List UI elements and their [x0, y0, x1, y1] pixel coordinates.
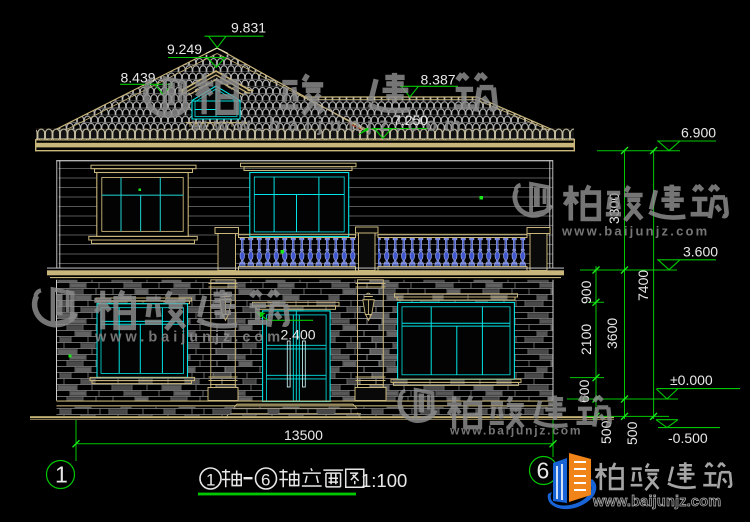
- svg-text:1:100: 1:100: [361, 470, 407, 491]
- svg-text:www.baijunjz.com: www.baijunjz.com: [191, 115, 468, 136]
- svg-text:3.600: 3.600: [683, 244, 718, 260]
- svg-text:1: 1: [206, 471, 215, 490]
- svg-text:1: 1: [55, 462, 68, 488]
- svg-text:6: 6: [537, 458, 550, 484]
- svg-text:www.baijunjz.com: www.baijunjz.com: [561, 224, 709, 239]
- svg-text:www.baijunjz.com: www.baijunjz.com: [449, 424, 582, 438]
- svg-text:8.387: 8.387: [421, 72, 456, 88]
- svg-text:500: 500: [598, 420, 614, 444]
- svg-text:2100: 2100: [578, 324, 594, 355]
- svg-text:9.249: 9.249: [167, 41, 202, 57]
- svg-text:6: 6: [261, 471, 270, 490]
- svg-text:7400: 7400: [635, 270, 651, 301]
- svg-text:www.baijunjz.com: www.baijunjz.com: [94, 330, 284, 346]
- svg-text:3600: 3600: [604, 318, 620, 349]
- svg-text:-0.500: -0.500: [668, 430, 708, 446]
- svg-text:6.900: 6.900: [681, 125, 716, 141]
- svg-text:13500: 13500: [284, 427, 323, 443]
- svg-text:2.400: 2.400: [281, 327, 316, 343]
- svg-text:±0.000: ±0.000: [670, 372, 713, 388]
- svg-text:500: 500: [624, 421, 640, 445]
- svg-text:9.831: 9.831: [231, 20, 266, 36]
- svg-text:900: 900: [578, 280, 594, 304]
- svg-text:www.baijunjz.com: www.baijunjz.com: [592, 494, 721, 510]
